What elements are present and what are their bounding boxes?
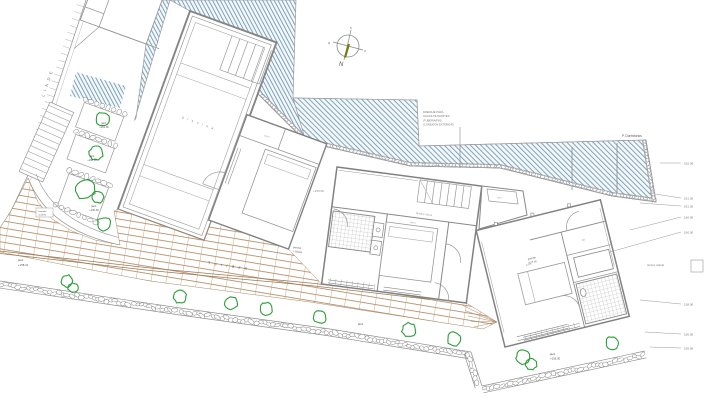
svg-text:s: s bbox=[350, 26, 352, 30]
svg-text:a: a bbox=[328, 41, 330, 45]
svg-text:155.00: 155.00 bbox=[684, 347, 694, 351]
svg-text:jard.: jard. bbox=[549, 352, 556, 356]
svg-text:+159.00: +159.00 bbox=[313, 189, 324, 193]
svg-text:jard.: jard. bbox=[357, 322, 364, 326]
svg-text:+160.20: +160.20 bbox=[87, 158, 97, 162]
svg-text:jard.: jard. bbox=[88, 154, 95, 158]
svg-text:DRENAJE PARA: DRENAJE PARA bbox=[423, 110, 444, 114]
svg-text:o: o bbox=[364, 49, 366, 53]
svg-text:N: N bbox=[339, 62, 344, 68]
svg-text:+156.00: +156.00 bbox=[550, 357, 561, 361]
svg-text:(TUBERIA/FIN): (TUBERIA/FIN) bbox=[423, 118, 442, 122]
svg-text:+160.00: +160.00 bbox=[89, 208, 99, 212]
svg-text:+158.90: +158.90 bbox=[38, 215, 47, 217]
svg-text:161.00: 161.00 bbox=[684, 197, 694, 201]
svg-text:terreno natural: terreno natural bbox=[647, 263, 664, 267]
svg-text:AGUAS FILTRANTES: AGUAS FILTRANTES bbox=[423, 114, 450, 118]
svg-text:162.00: 162.00 bbox=[684, 162, 694, 166]
svg-text:contador: contador bbox=[38, 210, 47, 213]
svg-text:+161.00: +161.00 bbox=[99, 125, 109, 129]
svg-text:+158.10: +158.10 bbox=[18, 263, 29, 267]
svg-text:160.00: 160.00 bbox=[684, 231, 694, 235]
svg-text:161.00: 161.00 bbox=[684, 205, 694, 209]
svg-text:158.00: 158.00 bbox=[684, 303, 694, 307]
svg-text:jard.: jard. bbox=[100, 121, 107, 125]
svg-text:(CONEXION EXTERIOR): (CONEXION EXTERIOR) bbox=[423, 123, 454, 127]
svg-text:jard.: jard. bbox=[90, 204, 97, 208]
svg-text:P. Dormitorios: P. Dormitorios bbox=[622, 134, 642, 138]
svg-text:jard.: jard. bbox=[17, 258, 24, 262]
svg-text:156.00: 156.00 bbox=[684, 333, 694, 337]
svg-text:160.00: 160.00 bbox=[684, 216, 694, 220]
